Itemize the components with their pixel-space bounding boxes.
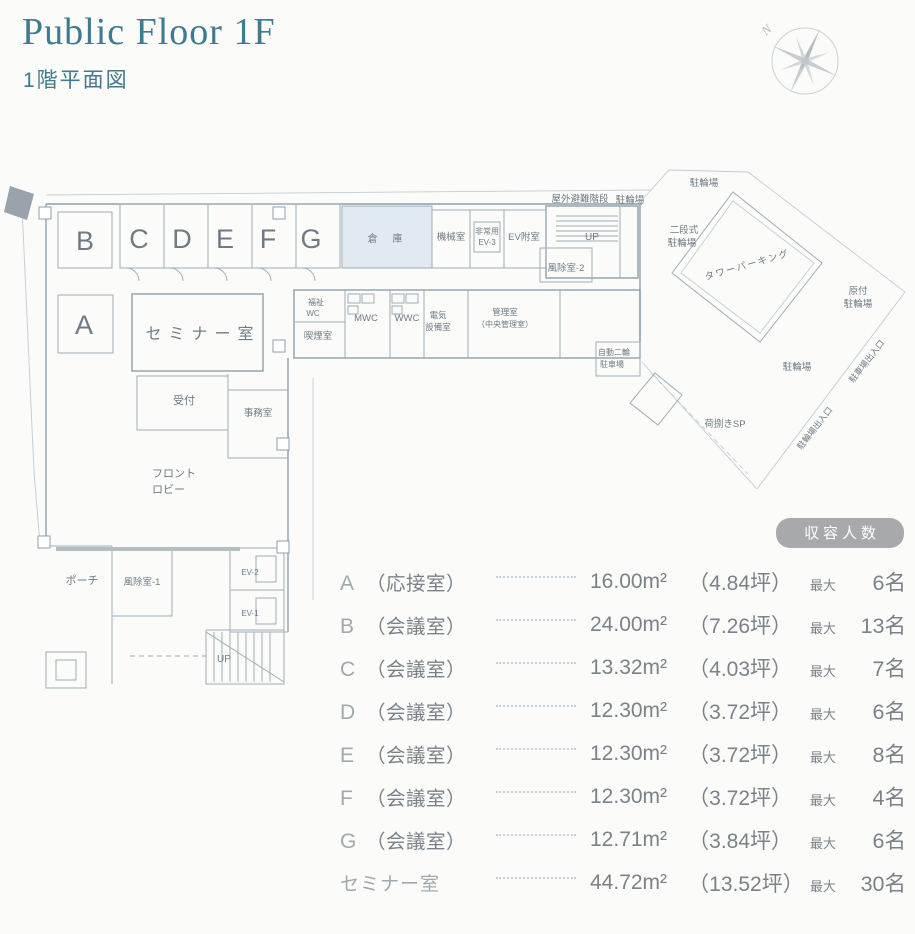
service-band	[294, 290, 640, 358]
electrical-label-1: 電気	[429, 310, 447, 320]
compass-rose-icon: N	[744, 8, 864, 108]
welfare-wc-label-2: WC	[306, 309, 320, 318]
row-capacity: 6名	[851, 566, 906, 597]
row-capacity: 4名	[851, 781, 906, 812]
dotted-leader	[496, 576, 576, 578]
row-tsubo: （4.84坪）	[688, 567, 810, 597]
smoking-room-label: 喫煙室	[304, 330, 333, 342]
room-d-label: D	[172, 224, 192, 254]
windbreak1-label: 風除室-1	[124, 576, 161, 588]
row-area: 24.00m²	[590, 613, 688, 637]
two-tier-label-2: 駐輪場	[668, 237, 697, 249]
row-letter: F	[340, 787, 366, 811]
porch-label: ポーチ	[66, 574, 99, 587]
row-room-type: （会議室）	[366, 825, 466, 854]
outdoor-escape-stairs-label: 屋外避難階段	[551, 193, 609, 205]
row-max-label: 最大	[810, 828, 851, 852]
row-max-label: 最大	[810, 871, 851, 895]
dotted-leader	[496, 705, 576, 707]
moped-label-1: 原付	[848, 286, 868, 297]
page-subtitle: 1階平面図	[23, 64, 129, 94]
electrical-label-2: 設備室	[425, 322, 451, 332]
seminar-room-label: セミナー室	[145, 325, 260, 343]
row-area: 44.72m²	[590, 871, 688, 895]
row-letter: C	[340, 658, 366, 682]
row-room-type: （会議室）	[366, 610, 466, 639]
floor-plan-page: { "header": { "title": "Public Floor 1F"…	[0, 0, 915, 934]
emergency-ev-label-2: EV-3	[478, 238, 496, 247]
dotted-leader	[496, 662, 576, 664]
up-top-label: UP	[585, 232, 599, 243]
row-capacity: 8名	[851, 738, 906, 769]
room-g-label: G	[300, 224, 321, 254]
motorcycle-label-1: 自動二輪	[598, 347, 630, 357]
ev2-label: EV-2	[241, 568, 259, 577]
two-tier-label-1: 二段式	[670, 224, 699, 236]
row-capacity: 7名	[851, 652, 906, 683]
row-area: 12.30m²	[590, 742, 688, 766]
dotted-leader	[496, 791, 576, 793]
row-letter: D	[340, 701, 366, 725]
parking-structures	[630, 192, 822, 425]
planter-box	[46, 652, 86, 688]
row-capacity: 6名	[851, 695, 906, 726]
row-max-label: 最大	[810, 699, 851, 723]
emergency-ev-label-1: 非常用	[475, 226, 499, 236]
row-room-type: （応接室）	[366, 567, 466, 596]
capacity-badge: 収容人数	[776, 518, 904, 548]
bicycle-parking-stairs-label: 駐輪場	[616, 194, 645, 206]
capacity-row-seminar: セミナー室 44.72m² （13.52坪） 最大 30名	[340, 861, 906, 904]
row-room-type: （会議室）	[366, 653, 466, 682]
row-capacity: 6名	[851, 824, 906, 855]
motorcycle-label-2: 駐車場	[600, 359, 624, 369]
row-area: 16.00m²	[590, 570, 688, 594]
room-f-label: F	[260, 224, 277, 254]
row-letter: A	[340, 572, 366, 596]
office-label: 事務室	[244, 407, 273, 419]
row-max-label: 最大	[810, 742, 851, 766]
control-room-label-2: （中央管理室）	[477, 319, 533, 329]
windbreak2-label: 風除室-2	[548, 262, 585, 274]
row-max-label: 最大	[810, 656, 851, 680]
capacity-table: 収容人数 A（応接室） 16.00m² （4.84坪） 最大 6名 B（会議室）…	[340, 518, 906, 904]
compass-north-label: N	[758, 20, 776, 39]
control-room-label-1: 管理室	[492, 307, 518, 317]
tower-parking-label: タワーパーキング	[703, 247, 791, 283]
capacity-row-a: A（応接室） 16.00m² （4.84坪） 最大 6名	[340, 560, 906, 603]
ev1-label: EV-1	[241, 609, 259, 618]
room-b-label: B	[76, 226, 94, 256]
loading-kiosk-box	[630, 373, 682, 425]
front-lobby-label-1: フロント	[152, 468, 196, 480]
wwc-label: WWC	[395, 313, 420, 324]
row-tsubo: （7.26坪）	[688, 610, 810, 640]
row-letter: B	[340, 615, 366, 639]
row-tsubo: （3.72坪）	[688, 696, 810, 726]
capacity-row-e: E（会議室） 12.30m² （3.72坪） 最大 8名	[340, 732, 906, 775]
row-tsubo: （3.84坪）	[688, 825, 810, 855]
reception-label: 受付	[173, 394, 195, 407]
corner-hatch	[4, 186, 34, 220]
front-lobby-label-2: ロビー	[152, 483, 185, 496]
capacity-rows: A（応接室） 16.00m² （4.84坪） 最大 6名 B（会議室） 24.0…	[340, 560, 906, 904]
row-tsubo: （4.03坪）	[688, 653, 810, 683]
page-title: Public Floor 1F	[22, 10, 276, 54]
row-letter: G	[340, 830, 366, 854]
row-capacity: 30名	[851, 867, 906, 898]
row-letter: セミナー室	[340, 869, 440, 896]
dotted-leader	[496, 877, 576, 879]
capacity-row-b: B（会議室） 24.00m² （7.26坪） 最大 13名	[340, 603, 906, 646]
loading-space-label: 荷捌きSP	[704, 418, 745, 430]
row-letter: E	[340, 744, 366, 768]
row-room-type: （会議室）	[366, 696, 466, 725]
row-max-label: 最大	[810, 785, 851, 809]
dotted-leader	[496, 834, 576, 836]
machine-room-label: 機械室	[437, 231, 466, 243]
row-max-label: 最大	[810, 570, 851, 594]
capacity-row-c: C（会議室） 13.32m² （4.03坪） 最大 7名	[340, 646, 906, 689]
row-tsubo: （3.72坪）	[688, 739, 810, 769]
storage-label: 倉 庫	[368, 232, 409, 245]
row-room-type: （会議室）	[366, 782, 466, 811]
row-room-type: （会議室）	[366, 739, 466, 768]
row-max-label: 最大	[810, 613, 851, 637]
dotted-leader	[496, 748, 576, 750]
row-tsubo: （3.72坪）	[688, 782, 810, 812]
room-e-label: E	[216, 224, 234, 254]
ev-lobby-label: EV附室	[508, 231, 540, 243]
room-c-label: C	[129, 224, 149, 254]
bicycle-parking-upper-label: 駐輪場	[690, 177, 719, 189]
capacity-row-d: D（会議室） 12.30m² （3.72坪） 最大 6名	[340, 689, 906, 732]
capacity-row-f: F（会議室） 12.30m² （3.72坪） 最大 4名	[340, 775, 906, 818]
dotted-leader	[496, 619, 576, 621]
bicycle-parking-lower-label: 駐輪場	[783, 361, 812, 373]
row-tsubo: （13.52坪）	[688, 868, 810, 898]
row-area: 12.30m²	[590, 699, 688, 723]
row-area: 12.30m²	[590, 785, 688, 809]
moped-label-2: 駐輪場	[844, 298, 873, 310]
welfare-wc-label-1: 福祉	[308, 297, 324, 307]
row-capacity: 13名	[851, 609, 906, 640]
row-area: 13.32m²	[590, 656, 688, 680]
mwc-label: MWC	[354, 313, 378, 324]
capacity-row-g: G（会議室） 12.71m² （3.84坪） 最大 6名	[340, 818, 906, 861]
up-bottom-label: UP	[217, 654, 231, 665]
row-area: 12.71m²	[590, 828, 688, 852]
room-a-label: A	[75, 310, 93, 340]
